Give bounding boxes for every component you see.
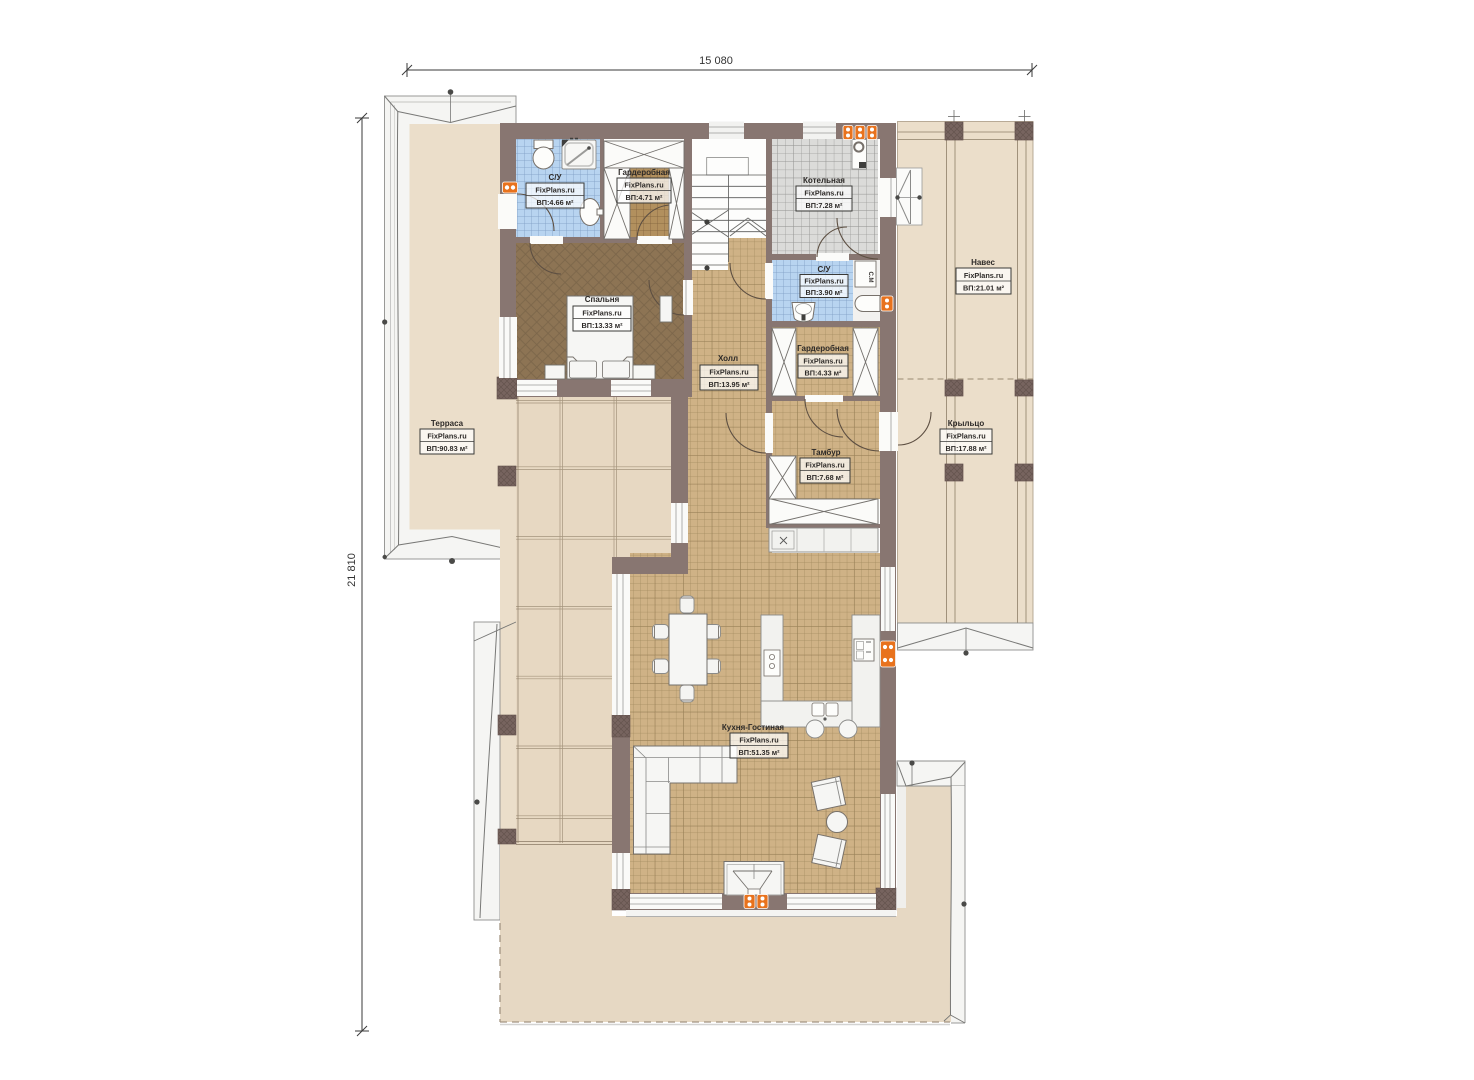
- svg-text:21 810: 21 810: [346, 553, 358, 587]
- svg-text:Спальня: Спальня: [585, 295, 620, 304]
- svg-text:ВП:4.66 м²: ВП:4.66 м²: [536, 198, 574, 207]
- svg-text:15 080: 15 080: [699, 55, 733, 67]
- svg-text:FixPlans.ru: FixPlans.ru: [535, 186, 574, 195]
- svg-text:ВП:7.28 м²: ВП:7.28 м²: [805, 201, 843, 210]
- svg-text:Гардеробная: Гардеробная: [618, 168, 670, 177]
- svg-text:FixPlans.ru: FixPlans.ru: [582, 309, 621, 318]
- svg-text:С.М: С.М: [867, 272, 873, 283]
- svg-text:FixPlans.ru: FixPlans.ru: [805, 461, 844, 470]
- svg-text:Тамбур: Тамбур: [811, 448, 840, 457]
- svg-text:Крыльцо: Крыльцо: [948, 419, 985, 428]
- svg-text:ВП:90.83 м²: ВП:90.83 м²: [426, 444, 468, 453]
- svg-text:FixPlans.ru: FixPlans.ru: [427, 432, 466, 441]
- svg-text:FixPlans.ru: FixPlans.ru: [804, 277, 843, 286]
- svg-text:ВП:7.68 м²: ВП:7.68 м²: [806, 473, 844, 482]
- svg-text:FixPlans.ru: FixPlans.ru: [624, 181, 663, 190]
- svg-text:ВП:51.35 м²: ВП:51.35 м²: [738, 748, 780, 757]
- svg-text:ВП:3.90 м²: ВП:3.90 м²: [805, 288, 843, 297]
- svg-text:Кухня-Гостиная: Кухня-Гостиная: [722, 723, 785, 732]
- svg-text:ВП:4.71 м²: ВП:4.71 м²: [625, 193, 663, 202]
- svg-text:FixPlans.ru: FixPlans.ru: [739, 736, 778, 745]
- svg-text:Холл: Холл: [718, 354, 738, 363]
- svg-text:С/У: С/У: [549, 173, 563, 182]
- svg-text:ВП:13.95 м²: ВП:13.95 м²: [708, 380, 750, 389]
- svg-text:ВП:4.33 м²: ВП:4.33 м²: [804, 369, 842, 378]
- svg-text:С/У: С/У: [818, 265, 832, 274]
- svg-text:Котельная: Котельная: [803, 176, 845, 185]
- svg-text:ВП:17.88 м²: ВП:17.88 м²: [945, 444, 987, 453]
- svg-text:ВП:21.01 м²: ВП:21.01 м²: [963, 284, 1005, 293]
- svg-text:ВП:13.33 м²: ВП:13.33 м²: [581, 321, 623, 330]
- svg-text:Терраса: Терраса: [431, 419, 464, 428]
- svg-text:Навес: Навес: [971, 258, 995, 267]
- svg-text:FixPlans.ru: FixPlans.ru: [709, 368, 748, 377]
- svg-text:FixPlans.ru: FixPlans.ru: [803, 357, 842, 366]
- svg-text:Гардеробная: Гардеробная: [797, 344, 849, 353]
- svg-text:FixPlans.ru: FixPlans.ru: [946, 432, 985, 441]
- svg-text:FixPlans.ru: FixPlans.ru: [964, 271, 1003, 280]
- svg-text:FixPlans.ru: FixPlans.ru: [804, 189, 843, 198]
